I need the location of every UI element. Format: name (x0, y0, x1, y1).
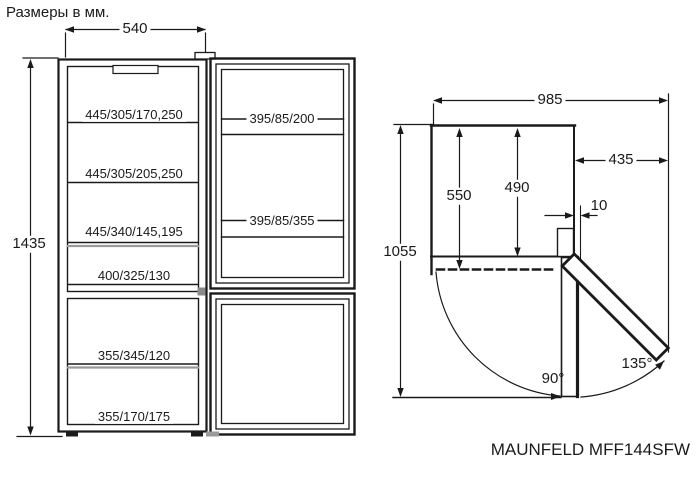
middle-hinge (198, 288, 206, 296)
arrowhead (456, 260, 462, 269)
arrowhead (659, 97, 668, 103)
arrowhead (551, 393, 561, 400)
freezer-door-outline (211, 294, 355, 435)
freezer-door-recess (222, 305, 344, 424)
dim-label-550: 550 (443, 188, 474, 205)
freezer-shelf-label: 355/345/120 (95, 349, 173, 363)
angle-label-90: 90° (542, 371, 565, 388)
dim-label-10: 10 (591, 198, 608, 215)
arrowhead (514, 128, 520, 137)
arrowhead (27, 427, 33, 436)
angle-label-135: 135° (621, 356, 652, 373)
dim-label-1055: 1055 (380, 244, 419, 261)
model-name: MAUNFELD MFF144SFW (478, 440, 690, 460)
shelf-label: 445/340/145,195 (82, 225, 186, 239)
arrowhead (397, 125, 403, 134)
arrowhead (575, 157, 584, 163)
arrowhead (65, 26, 74, 32)
foot (191, 432, 203, 437)
foot (66, 432, 78, 437)
arrowhead (456, 128, 462, 137)
dim-1055 (394, 125, 430, 398)
arrowhead (433, 97, 442, 103)
dim-label-width-540: 540 (119, 21, 150, 38)
fridge-door-outline (211, 59, 355, 289)
arrowhead (655, 361, 664, 370)
dim-10 (545, 212, 597, 218)
door-bin-label: 395/85/200 (246, 112, 317, 126)
door-foot (206, 432, 219, 437)
lamp (113, 66, 158, 74)
arrowhead (659, 157, 668, 163)
fridge-door-frame (216, 64, 349, 283)
arrowhead (514, 248, 520, 257)
dim-label-435: 435 (605, 152, 636, 169)
freezer-shelf-label: 355/170/175 (95, 410, 173, 424)
fridge-door-recess (222, 70, 344, 278)
arrowhead (397, 388, 403, 397)
dim-label-height-1435: 1435 (9, 236, 48, 253)
drawing-title: Размеры в мм. (6, 4, 109, 21)
arrowhead (27, 59, 33, 68)
shelf-label: 445/305/170,250 (82, 108, 186, 122)
shelf-label: 400/325/130 (95, 269, 173, 283)
dim-label-985: 985 (534, 92, 565, 109)
arrowhead (581, 212, 590, 218)
arrowhead (565, 212, 574, 218)
hinge-housing (558, 229, 574, 257)
shelf-label: 445/305/205,250 (82, 167, 186, 181)
arrowhead (197, 26, 206, 32)
dim-label-490: 490 (501, 180, 532, 197)
freezer-door-frame (216, 299, 349, 429)
dimension-drawing: Размеры в мм. 540 1435 445/305/170,250 4… (0, 0, 700, 477)
door-bin-label: 395/85/355 (246, 214, 317, 228)
